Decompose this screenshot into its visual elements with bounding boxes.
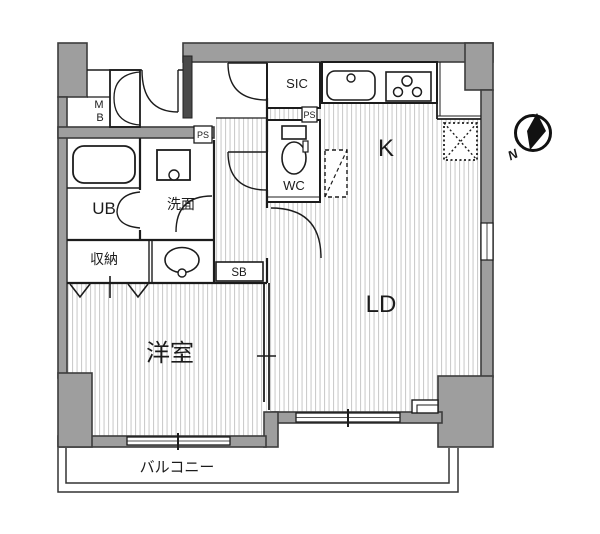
- toilet-fixture: [282, 126, 308, 174]
- kitchen-counter: [322, 62, 437, 103]
- washroom-label: 洗面: [167, 196, 195, 212]
- faucet-icon: [347, 74, 355, 82]
- appliance-space-dashed: [325, 150, 347, 197]
- pipe-space-label-1: PS: [197, 130, 209, 140]
- bathtub: [73, 146, 135, 183]
- shoe-closet-door-arc: [228, 63, 267, 100]
- refrigerator-space-dotted: [444, 123, 477, 160]
- meter-box-label-b: B: [96, 112, 103, 124]
- north-label: N: [505, 146, 520, 164]
- bath-door-arc: [117, 192, 140, 228]
- entrance-door-arc: [142, 70, 178, 112]
- service-box-label: SB: [231, 267, 247, 279]
- burner-icon: [394, 88, 403, 97]
- pipe-space-label-2: PS: [303, 110, 315, 120]
- kitchen-label: K: [378, 135, 394, 162]
- shoe-closet-label: SIC: [286, 76, 308, 91]
- step-box: [412, 400, 438, 413]
- entrance-wall-stub: [183, 56, 192, 118]
- balcony-label: バルコニー: [140, 459, 215, 476]
- toilet-label: WC: [283, 178, 305, 193]
- burner-icon: [402, 76, 412, 86]
- side-window: [481, 223, 493, 260]
- meter-box-compartment: [110, 70, 140, 127]
- western-room-label: 洋室: [146, 340, 194, 367]
- floor-plan-page: N K LD 洋室 UB 洗面 収納 WC SIC SB M B PS PS バ…: [0, 0, 600, 529]
- burner-icon: [413, 88, 422, 97]
- meter-box-label-m: M: [94, 99, 103, 111]
- floor-hatching: [67, 62, 481, 436]
- washing-machine-pan: [165, 248, 199, 278]
- living-dining-label: LD: [366, 291, 397, 318]
- floor-plan-drawing: N K LD 洋室 UB 洗面 収納 WC SIC SB M B PS PS バ…: [0, 0, 600, 529]
- balcony-outline: [58, 448, 458, 492]
- vanity-basin: [157, 150, 190, 180]
- unit-bath-label: UB: [92, 199, 116, 218]
- storage-label: 収納: [90, 251, 118, 267]
- compass: N: [505, 113, 550, 163]
